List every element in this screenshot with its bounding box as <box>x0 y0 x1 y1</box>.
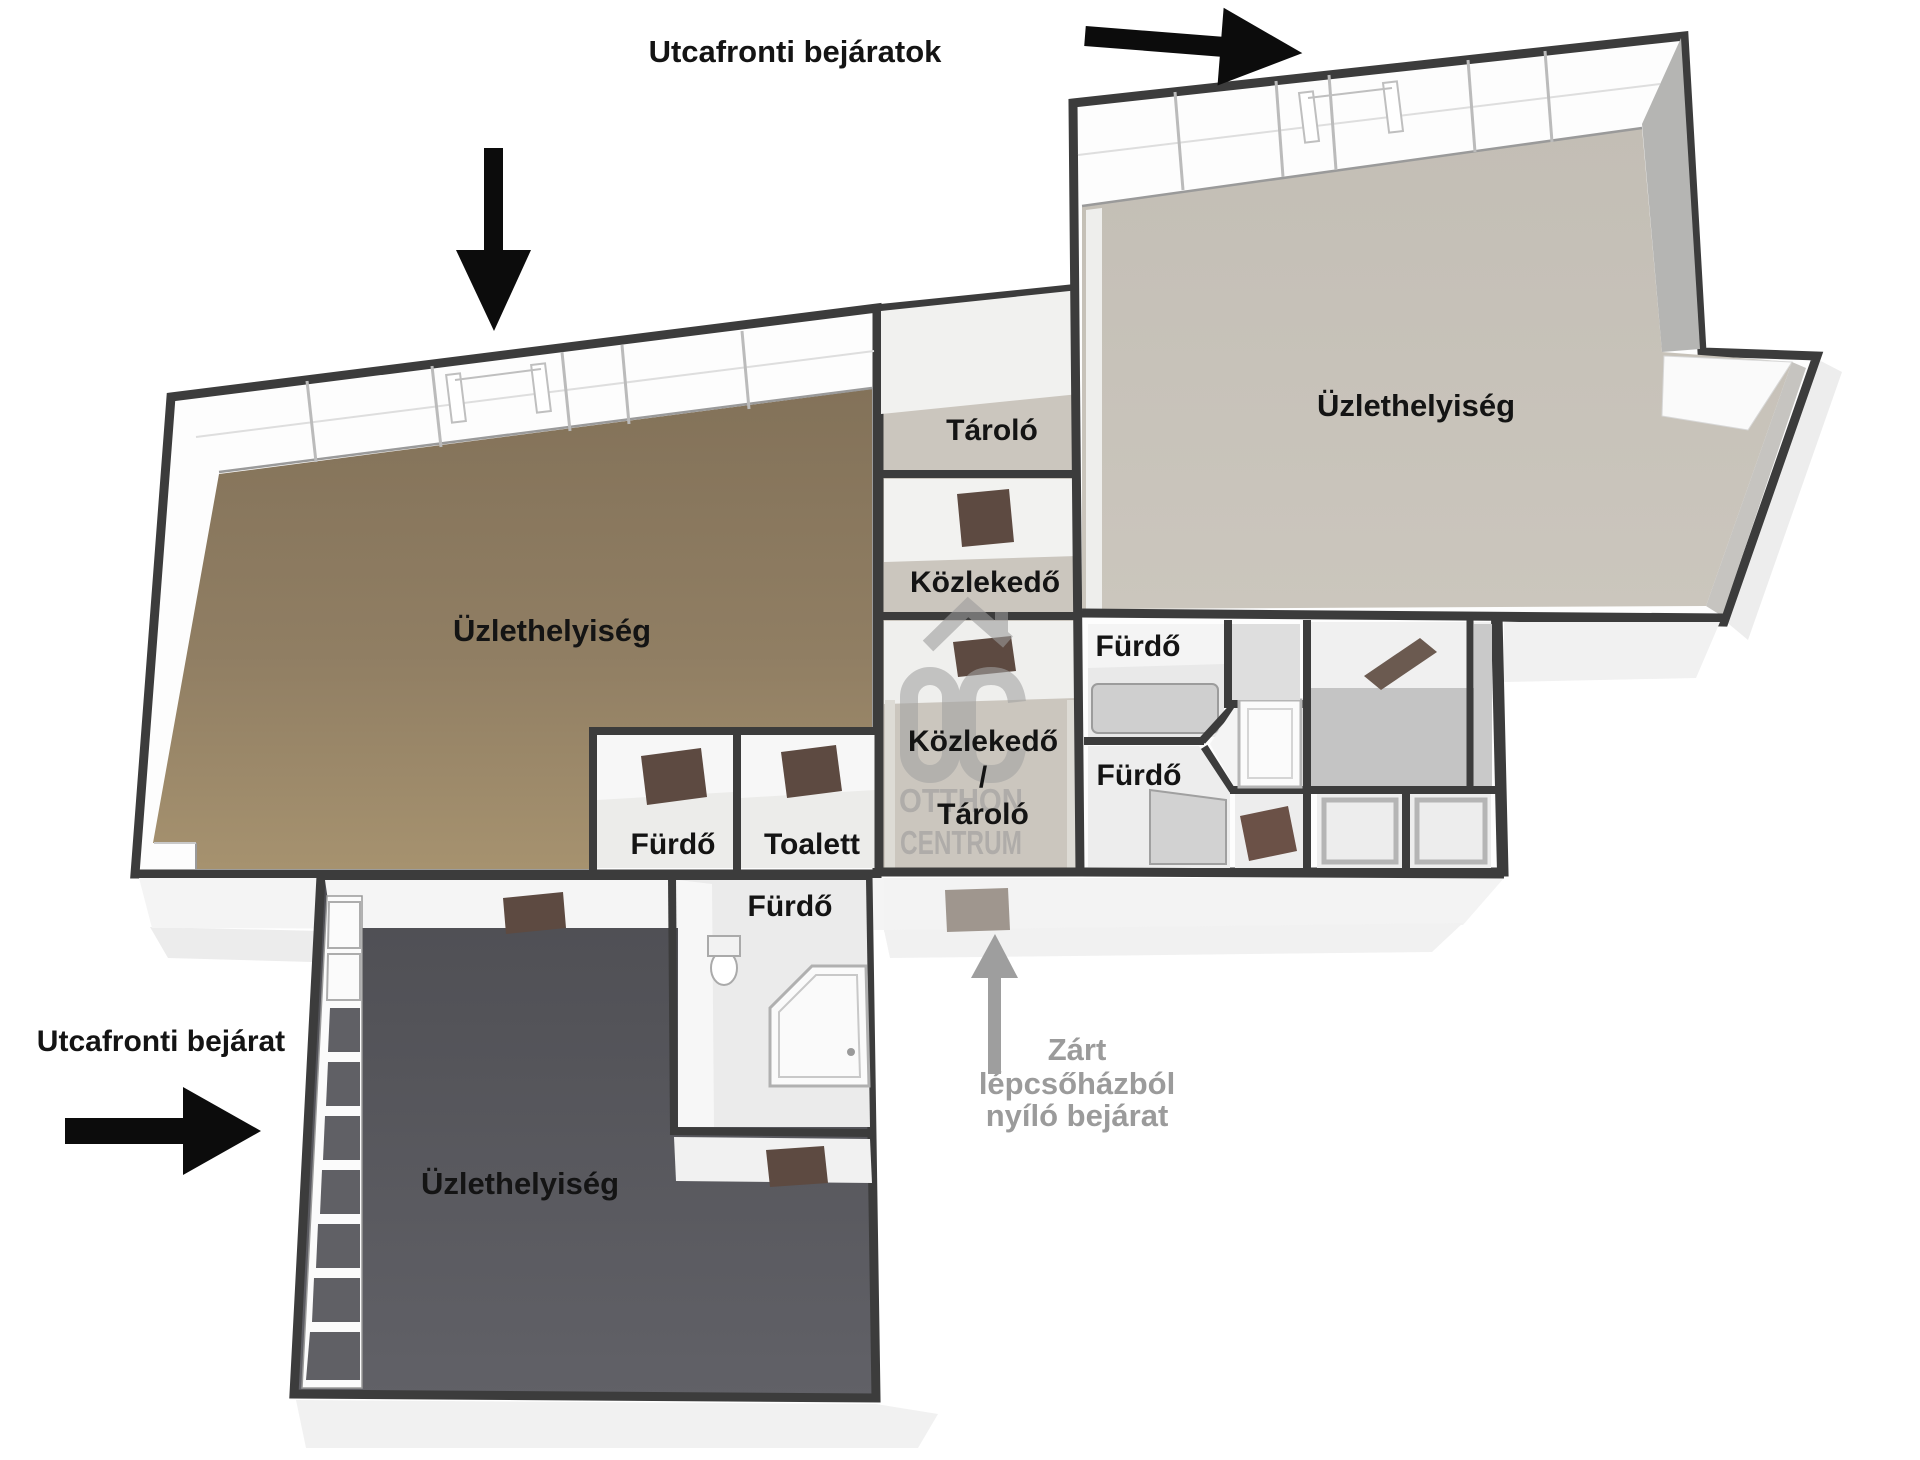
svg-text:Utcafronti bejáratok: Utcafronti bejáratok <box>649 34 943 69</box>
svg-text:Toalett: Toalett <box>764 828 860 861</box>
svg-text:Zárt: Zárt <box>1048 1032 1107 1067</box>
svg-text:Fürdő: Fürdő <box>1097 759 1182 792</box>
svg-text:lépcsőházból: lépcsőházból <box>979 1066 1175 1101</box>
svg-text:nyíló bejárat: nyíló bejárat <box>986 1098 1169 1133</box>
svg-text:Üzlethelyiség: Üzlethelyiség <box>1317 388 1515 423</box>
svg-text:Fürdő: Fürdő <box>748 890 833 923</box>
svg-text:Üzlethelyiség: Üzlethelyiség <box>421 1166 619 1201</box>
svg-text:Fürdő: Fürdő <box>631 828 716 861</box>
svg-text:/: / <box>979 761 988 794</box>
svg-text:Tároló: Tároló <box>946 414 1038 447</box>
svg-text:Közlekedő: Közlekedő <box>908 725 1058 758</box>
svg-text:Fürdő: Fürdő <box>1096 630 1181 663</box>
svg-text:Üzlethelyiség: Üzlethelyiség <box>453 613 651 648</box>
svg-text:Tároló: Tároló <box>937 798 1029 831</box>
svg-text:Közlekedő: Közlekedő <box>910 566 1060 599</box>
svg-text:Utcafronti bejárat: Utcafronti bejárat <box>37 1025 285 1058</box>
